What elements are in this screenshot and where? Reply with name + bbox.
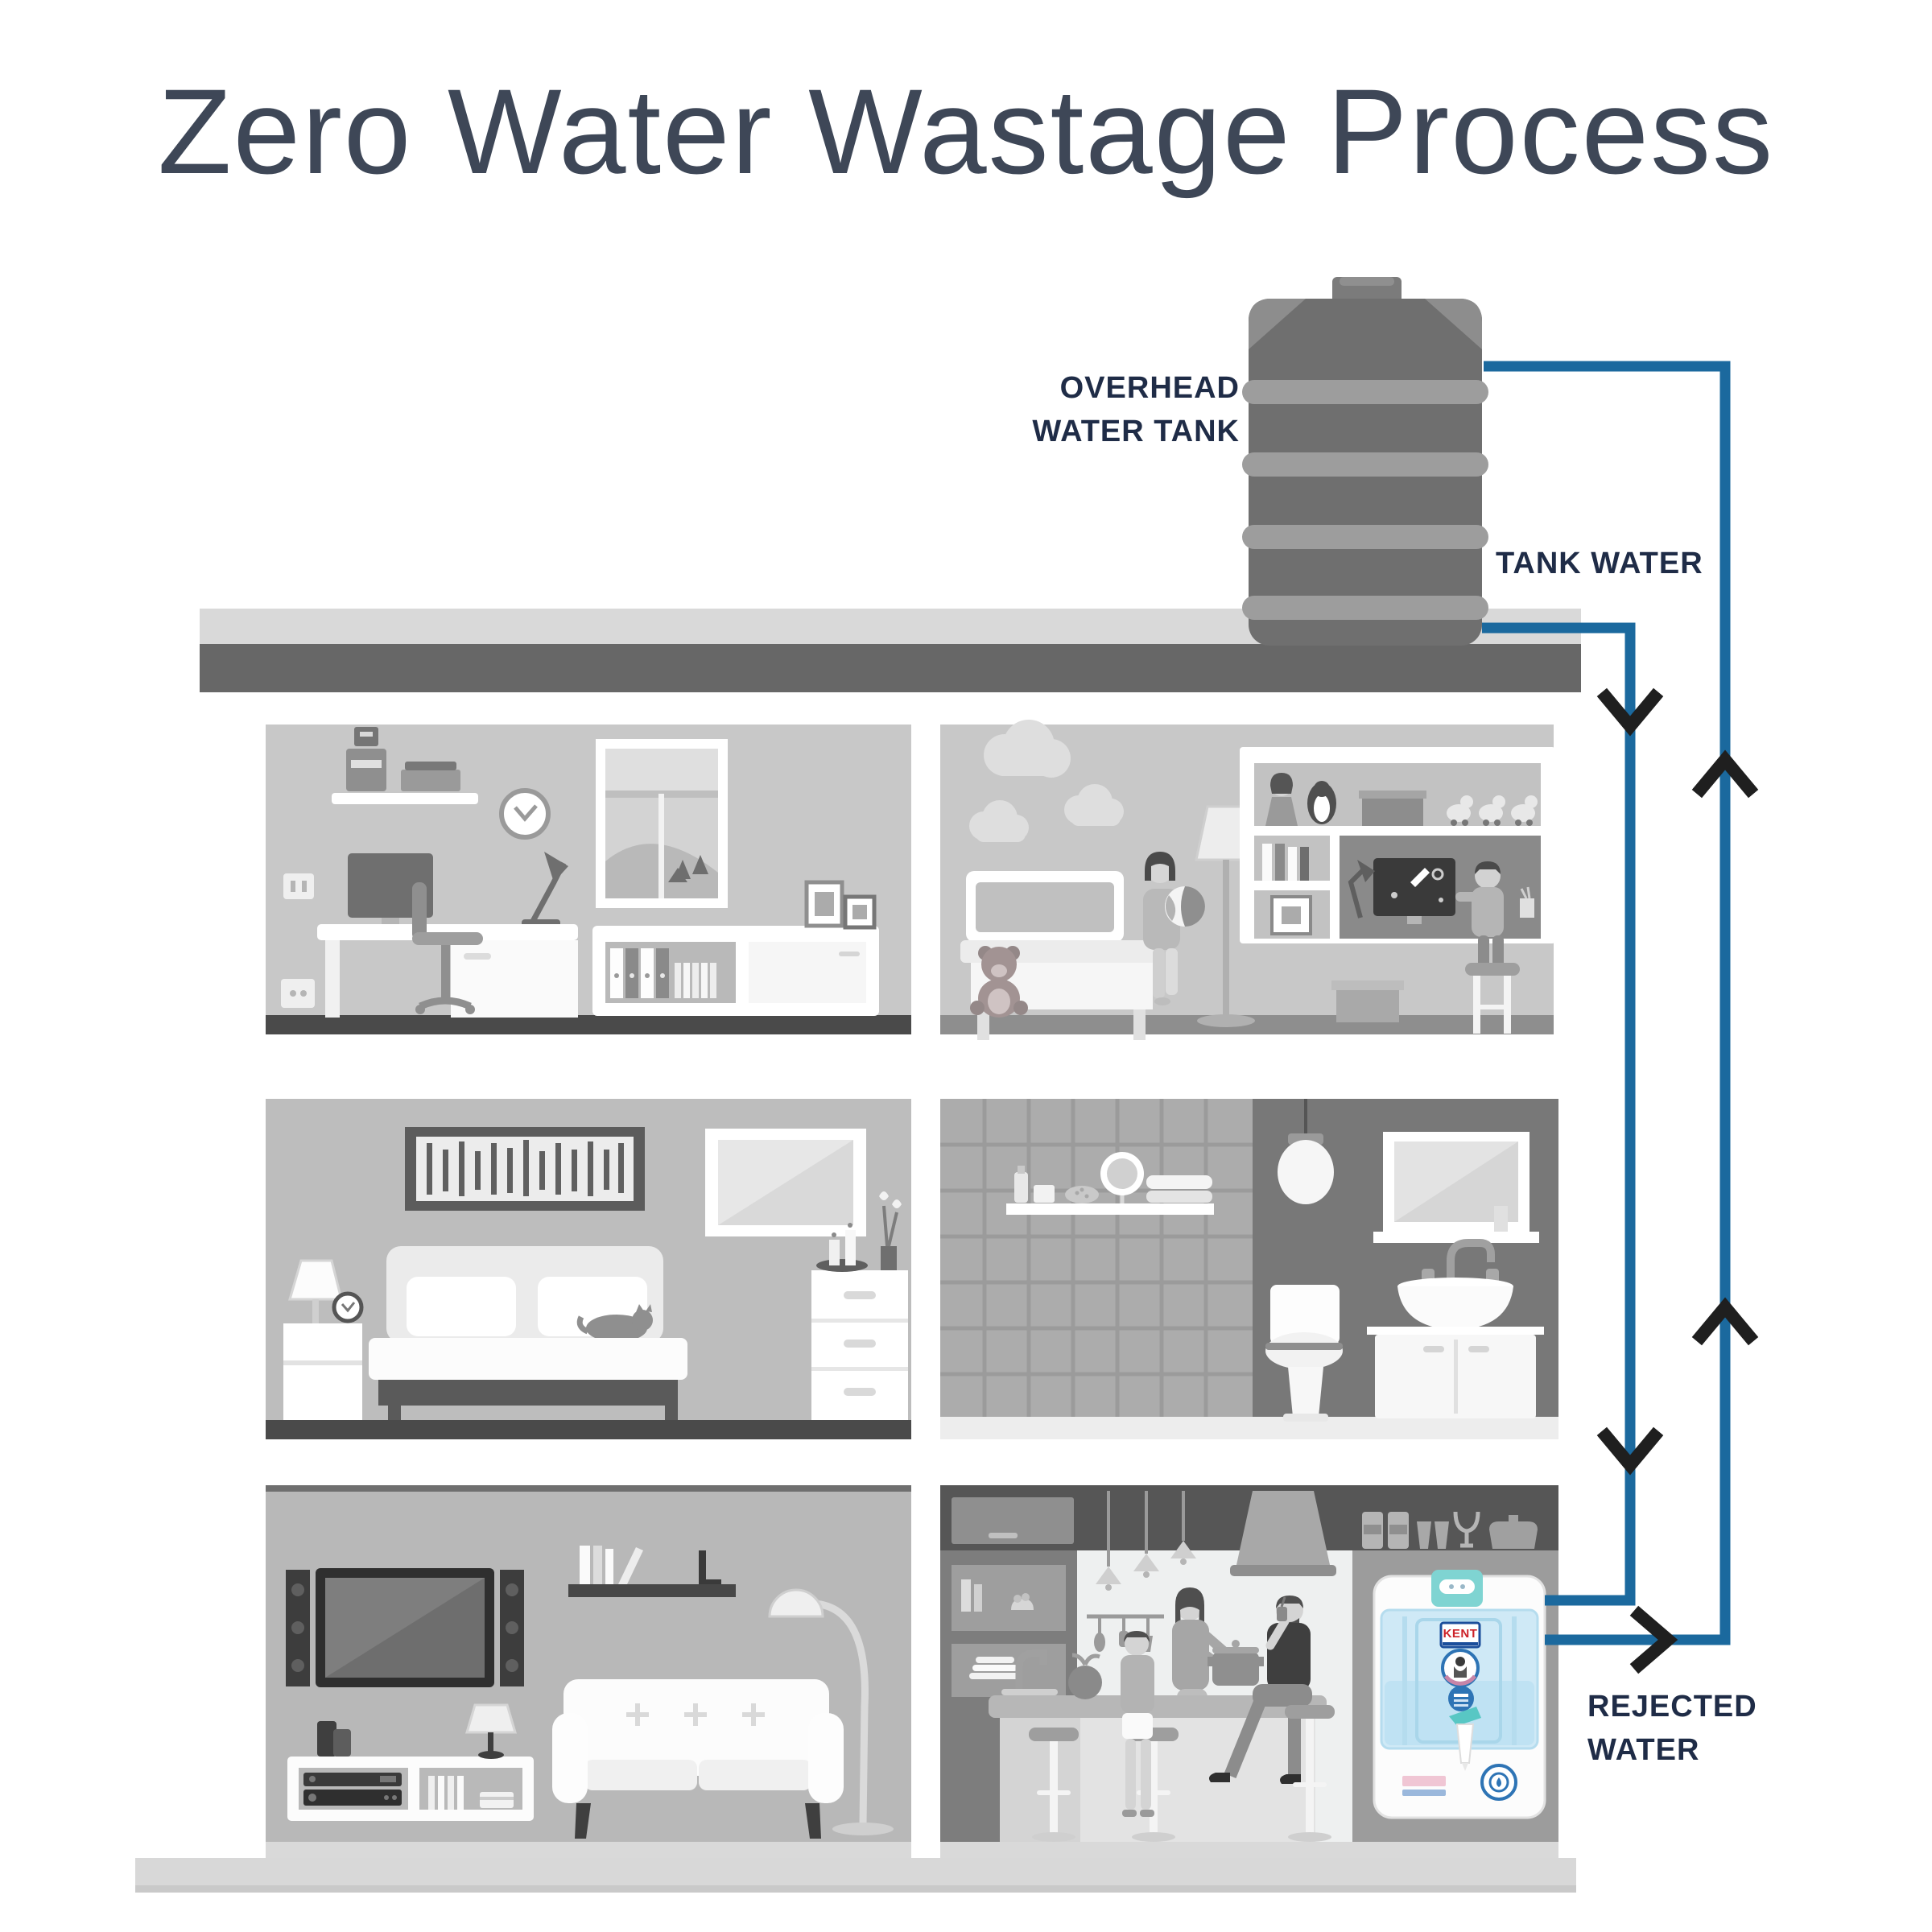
wall-clock-icon: [502, 791, 548, 837]
label-overhead-water-tank: OVERHEAD WATER TANK: [1032, 371, 1240, 448]
beach-ball-icon: [1165, 886, 1205, 927]
computer-monitor-icon: [1373, 858, 1455, 924]
vanity-cabinet: [1375, 1335, 1536, 1418]
tiled-wall: [940, 1099, 1253, 1439]
aqua-badge: [1482, 1765, 1516, 1799]
room-living: [266, 1485, 911, 1858]
label-rejected-water: REJECTED WATER: [1587, 1690, 1757, 1767]
kent-logo: KENT: [1441, 1623, 1480, 1647]
svg-text:KENT: KENT: [1443, 1627, 1478, 1641]
power-outlet: [281, 979, 315, 1008]
floor-toy-box: [1331, 980, 1404, 1022]
label-tank-water: TANK WATER: [1496, 547, 1703, 580]
speaker-icon: [286, 1570, 310, 1686]
speaker-icon: [500, 1570, 524, 1686]
tank-rib: [1242, 525, 1488, 549]
svg-text:WATER: WATER: [1587, 1733, 1699, 1767]
tv-icon: [316, 1568, 494, 1687]
room-kids: [940, 720, 1555, 1040]
upper-cabinet: [952, 1497, 1074, 1544]
framed-picture: [1272, 897, 1311, 934]
svg-text:REJECTED: REJECTED: [1587, 1690, 1757, 1724]
bedroom-mirror: [705, 1129, 866, 1236]
toy-box: [1359, 791, 1426, 826]
water-tank: [1242, 277, 1488, 646]
purity-badge: [1443, 1650, 1478, 1686]
bathroom-mirror: [1373, 1132, 1539, 1243]
bed: [369, 1246, 687, 1420]
wall-art: [405, 1127, 645, 1211]
room-office: [266, 724, 911, 1034]
roof-slab: [200, 644, 1581, 692]
storage-boxes: [346, 749, 386, 791]
computer-desk: [1340, 836, 1541, 939]
sideboard: [592, 926, 879, 1016]
water-purifier: KENT: [1374, 1570, 1545, 1818]
tds-badge: [1448, 1686, 1474, 1711]
toy-shelf: [1240, 747, 1555, 943]
room-bedroom: [266, 1099, 911, 1439]
media-console: [287, 1757, 534, 1821]
tank-rib: [1242, 452, 1488, 477]
ground: [135, 1858, 1576, 1893]
office-window: [596, 739, 728, 908]
page-title: Zero Water Wastage Process: [158, 64, 1774, 199]
pillow: [407, 1277, 516, 1336]
room-bathroom: [940, 1099, 1558, 1439]
power-outlet: [283, 873, 314, 899]
svg-text:OVERHEAD: OVERHEAD: [1060, 371, 1240, 405]
purifier-base-label: [1402, 1776, 1446, 1796]
tank-rib: [1242, 380, 1488, 404]
svg-text:WATER TANK: WATER TANK: [1032, 415, 1240, 448]
alarm-clock-icon: [334, 1294, 361, 1321]
tank-rib: [1242, 596, 1488, 620]
